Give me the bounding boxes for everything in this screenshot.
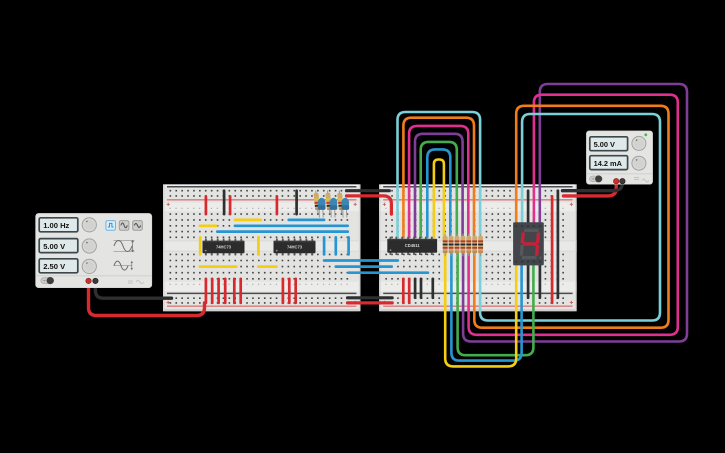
- svg-text:14.2 mA: 14.2 mA: [594, 159, 623, 168]
- svg-text:2.50 V: 2.50 V: [43, 262, 66, 271]
- svg-text:74HC73: 74HC73: [216, 244, 232, 249]
- svg-text:5.00 V: 5.00 V: [43, 242, 66, 251]
- svg-text:1.00 Hz: 1.00 Hz: [43, 221, 69, 230]
- svg-text:5.00 V: 5.00 V: [594, 140, 615, 149]
- svg-text:74HC73: 74HC73: [287, 244, 303, 249]
- svg-text:CD4511: CD4511: [405, 243, 421, 248]
